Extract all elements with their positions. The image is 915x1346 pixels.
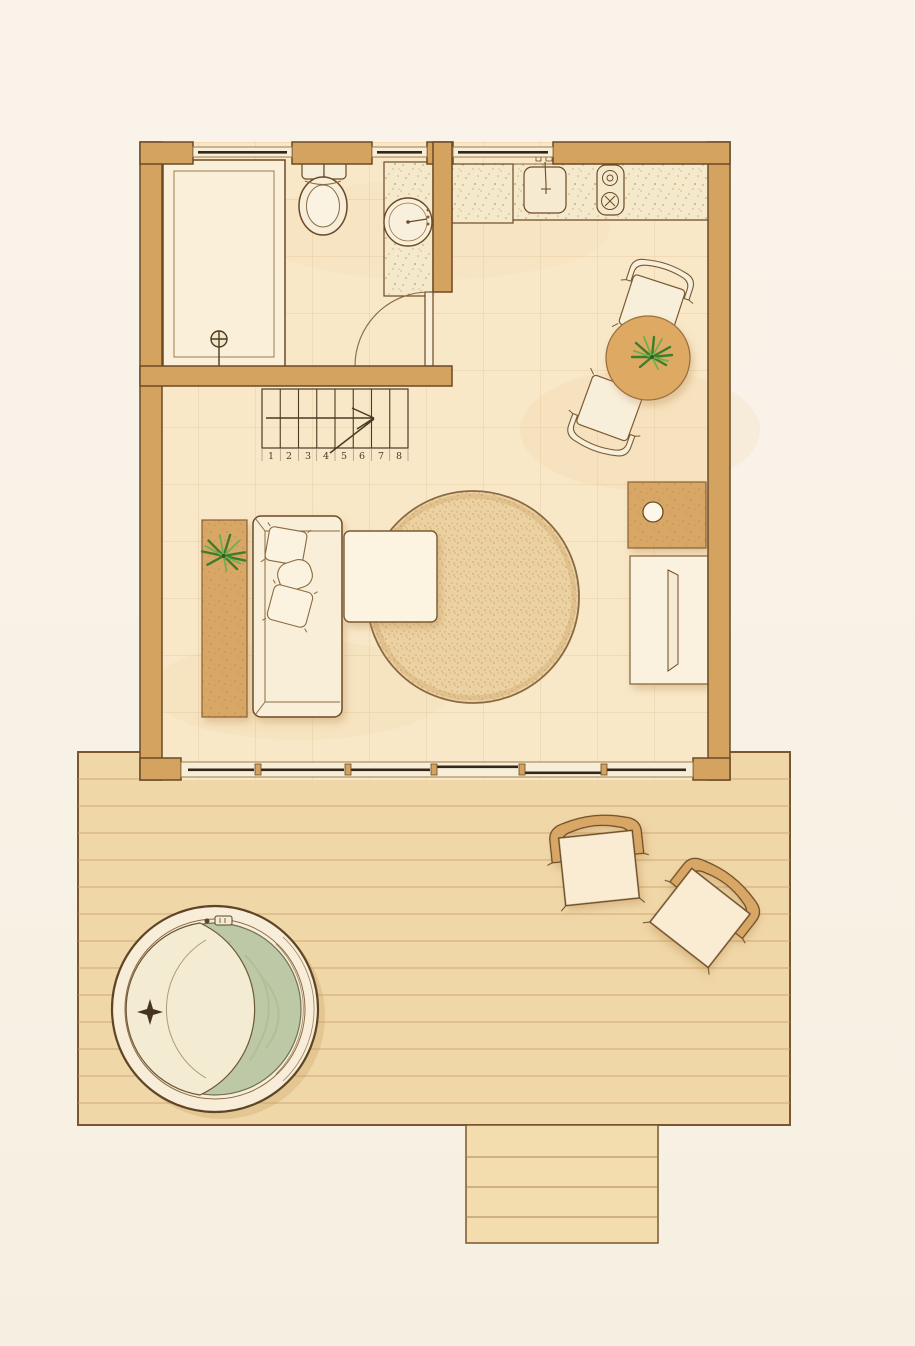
kitchen xyxy=(452,157,708,223)
window-1 xyxy=(193,147,292,157)
tread-number: 5 xyxy=(341,451,347,462)
tread-number: 1 xyxy=(268,451,274,462)
wall-top-segment xyxy=(553,142,730,164)
wall-bathroom-bottom xyxy=(140,366,452,386)
wall-left xyxy=(140,142,162,780)
deck-steps xyxy=(466,1125,658,1243)
tread-number: 7 xyxy=(378,451,384,462)
vanity xyxy=(384,162,433,296)
lounge-chair-seat xyxy=(559,830,640,905)
floor-plan-drawing: 1 2 3 4 5 6 7 8 xyxy=(0,0,915,1346)
wall-bottom-segment xyxy=(140,758,181,780)
wall-bottom-segment xyxy=(693,758,730,780)
tread-number: 6 xyxy=(359,451,365,462)
kitchen-tall-unit xyxy=(452,164,513,223)
tv xyxy=(668,570,678,671)
wall-bathroom-divider xyxy=(433,142,452,292)
floor-plan-page: 1 2 3 4 5 6 7 8 xyxy=(0,0,915,1346)
sliding-glass-wall xyxy=(181,762,693,777)
wall-top-segment xyxy=(140,142,193,164)
tread-number: 8 xyxy=(396,451,402,462)
coffee-table xyxy=(344,531,437,622)
tread-number: 2 xyxy=(286,451,292,462)
door-leaf xyxy=(425,292,433,366)
wall-top-segment xyxy=(292,142,372,164)
window-3 xyxy=(453,147,553,157)
side-cabinet xyxy=(628,482,706,548)
shower xyxy=(163,160,285,368)
house: 1 2 3 4 5 6 7 8 xyxy=(140,142,760,780)
toilet xyxy=(299,161,347,235)
living-area xyxy=(199,482,708,717)
tread-number: 3 xyxy=(305,451,311,462)
cooktop xyxy=(597,165,624,215)
lamp xyxy=(643,502,663,522)
windows xyxy=(193,147,553,157)
window-2 xyxy=(372,147,427,157)
wall-right xyxy=(708,142,730,780)
tread-number: 4 xyxy=(323,451,329,462)
tv-console xyxy=(630,556,708,684)
